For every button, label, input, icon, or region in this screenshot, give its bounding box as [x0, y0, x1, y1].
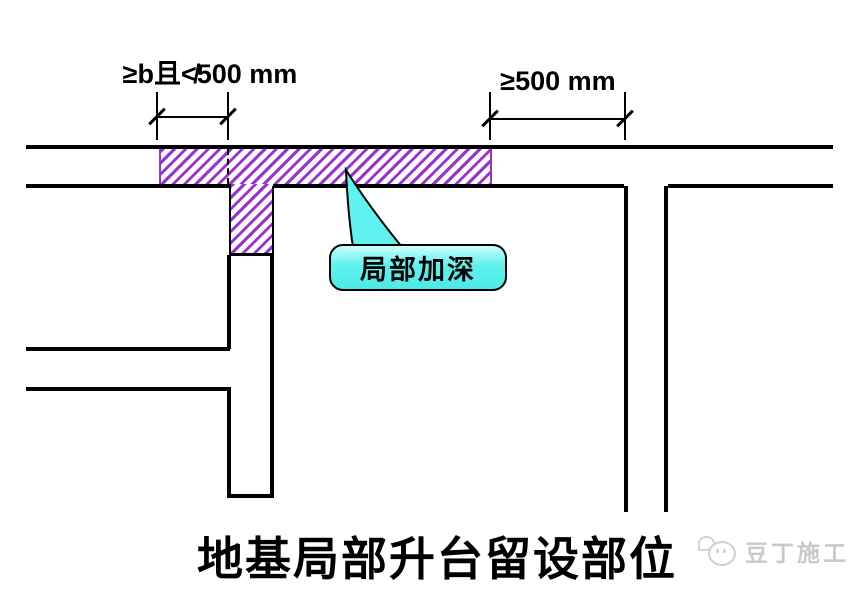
- right-wall-right-edge: [664, 186, 668, 512]
- wall-axis-dashed-line: [227, 149, 229, 184]
- raised-platform-hatch: [159, 149, 492, 184]
- slab-bottom-line-right: [668, 184, 833, 188]
- watermark: 豆丁施工: [698, 534, 849, 568]
- watermark-label: 豆丁施工: [745, 534, 849, 568]
- local-deepening-hatch: [229, 184, 272, 256]
- lower-slab-bottom-line: [26, 387, 230, 391]
- slab-bottom-line-middle: [273, 184, 624, 188]
- callout-bubble: 局部加深: [329, 244, 507, 291]
- dimension-line: [157, 116, 229, 118]
- slab-bottom-line-left: [26, 184, 230, 188]
- dimension-line: [490, 118, 625, 120]
- foundation-step-diagram: ≥b且≮500 mm ≥500 mm 局部加深 地基局部升台留设部位 豆丁施工: [0, 0, 862, 590]
- dimension-label-left: ≥b且≮500 mm: [95, 52, 325, 91]
- douding-mascot-icon: [698, 534, 738, 568]
- callout-label: 局部加深: [360, 248, 476, 287]
- left-wall-left-edge-lower: [227, 387, 231, 498]
- dimension-label-right: ≥500 mm: [452, 66, 664, 97]
- callout-tail: [330, 160, 420, 255]
- left-wall-left-edge-upper: [227, 255, 231, 349]
- left-wall-bottom-cap: [227, 494, 274, 498]
- right-wall-left-edge: [624, 186, 628, 512]
- lower-slab-top-line: [26, 347, 230, 351]
